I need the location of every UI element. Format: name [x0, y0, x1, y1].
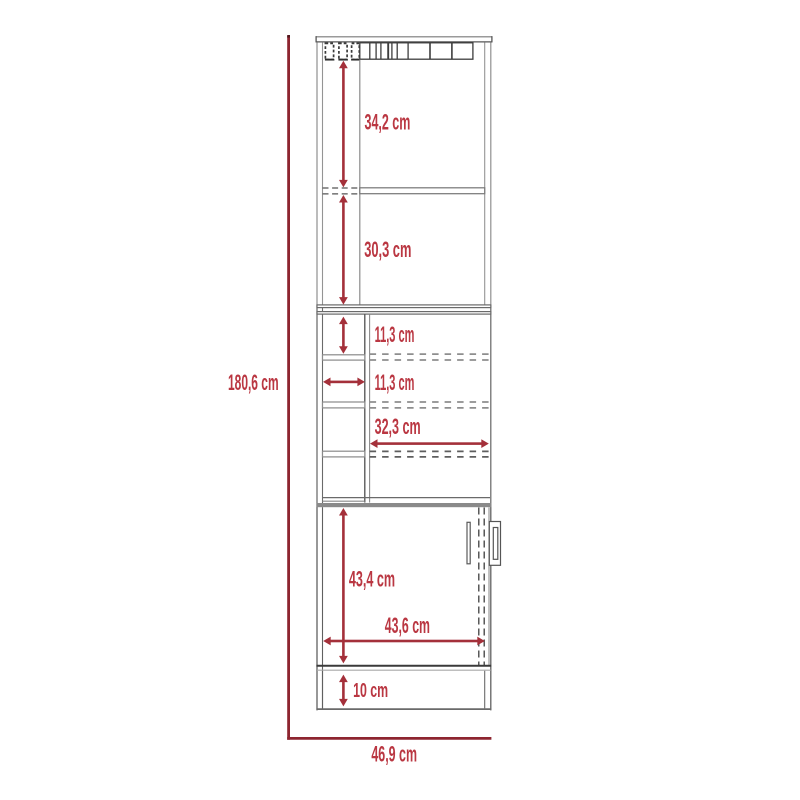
- svg-text:43,4 cm: 43,4 cm: [349, 566, 395, 591]
- svg-text:30,3 cm: 30,3 cm: [364, 237, 411, 262]
- svg-text:34,2 cm: 34,2 cm: [365, 109, 411, 134]
- svg-text:32,3 cm: 32,3 cm: [375, 414, 421, 439]
- svg-text:180,6 cm: 180,6 cm: [228, 370, 279, 395]
- svg-text:11,3 cm: 11,3 cm: [375, 370, 415, 395]
- svg-text:43,6 cm: 43,6 cm: [385, 613, 430, 638]
- svg-text:10 cm: 10 cm: [353, 680, 388, 702]
- svg-text:46,9 cm: 46,9 cm: [371, 742, 417, 767]
- svg-text:11,3 cm: 11,3 cm: [375, 322, 415, 347]
